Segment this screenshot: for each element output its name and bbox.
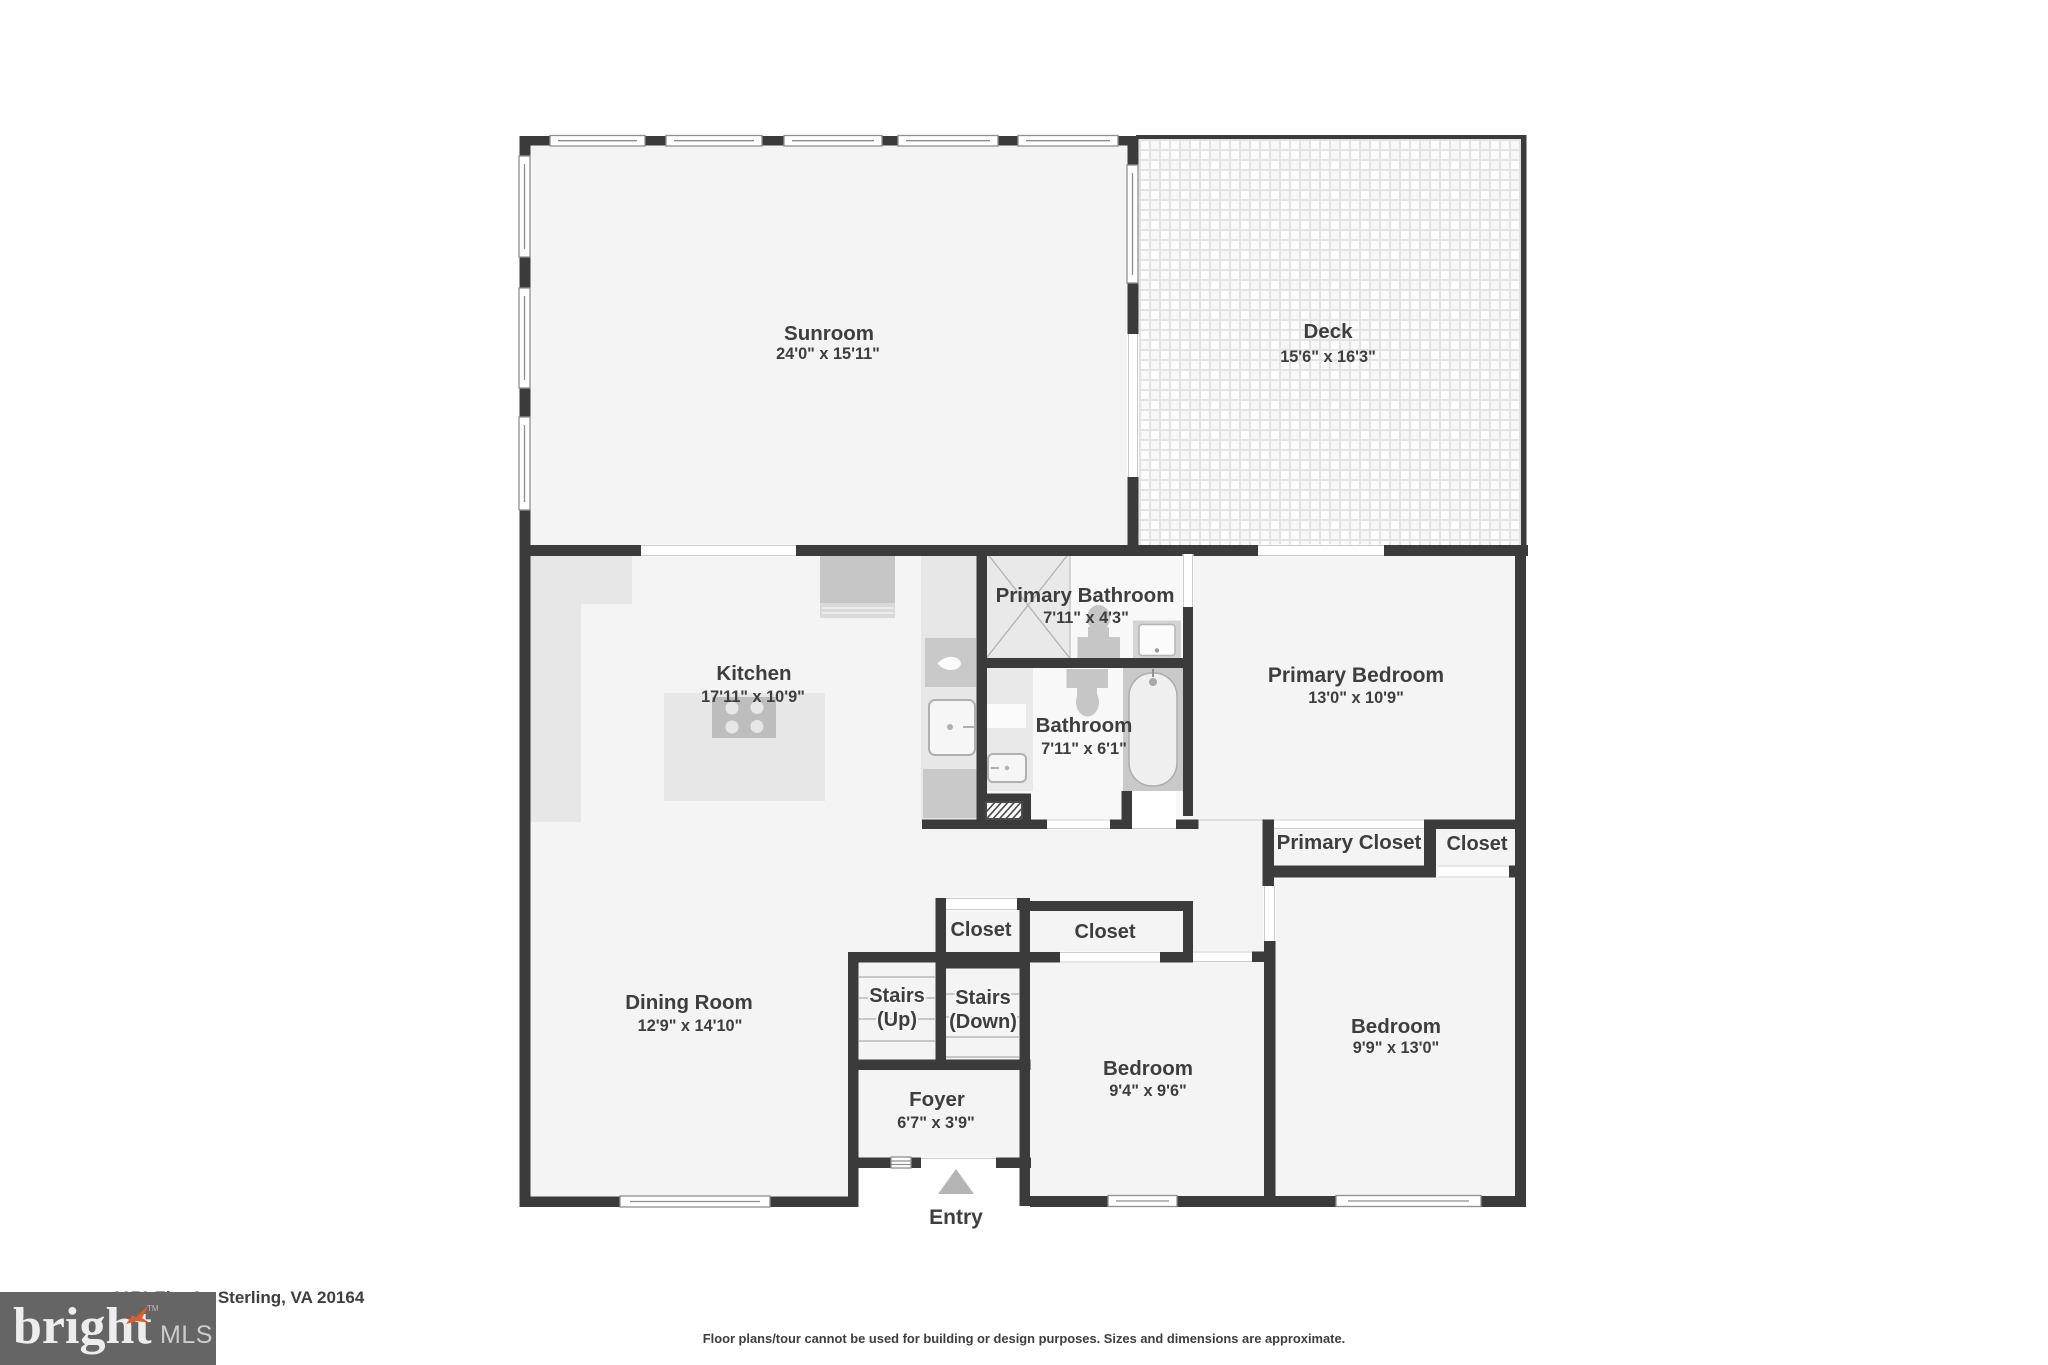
svg-text:(Down): (Down)	[949, 1011, 1017, 1033]
svg-text:Primary Bathroom: Primary Bathroom	[996, 584, 1175, 607]
svg-text:12'9" x 14'10": 12'9" x 14'10"	[638, 1017, 743, 1035]
svg-text:6'7" x 3'9": 6'7" x 3'9"	[897, 1114, 975, 1132]
svg-text:Closet: Closet	[950, 919, 1011, 941]
svg-text:7'11" x 6'1": 7'11" x 6'1"	[1041, 740, 1127, 758]
svg-text:24'0" x 15'11": 24'0" x 15'11"	[776, 345, 880, 363]
svg-text:7'11" x 4'3": 7'11" x 4'3"	[1043, 609, 1129, 627]
svg-text:9'9" x 13'0": 9'9" x 13'0"	[1353, 1039, 1440, 1057]
svg-text:Deck: Deck	[1303, 320, 1353, 343]
svg-text:17'11" x 10'9": 17'11" x 10'9"	[701, 688, 805, 706]
svg-text:Stairs: Stairs	[955, 987, 1011, 1009]
svg-text:TM: TM	[147, 1304, 159, 1313]
svg-text:MLS: MLS	[160, 1321, 213, 1349]
svg-text:15'6" x 16'3": 15'6" x 16'3"	[1280, 348, 1376, 366]
svg-text:(Up): (Up)	[877, 1009, 917, 1031]
svg-text:Floor plans/tour cannot be use: Floor plans/tour cannot be used for buil…	[703, 1331, 1345, 1346]
svg-text:Stairs: Stairs	[869, 985, 925, 1007]
svg-text:Dining Room: Dining Room	[625, 991, 753, 1014]
svg-text:Sunroom: Sunroom	[784, 322, 874, 345]
svg-text:Foyer: Foyer	[909, 1088, 965, 1111]
svg-text:13'0" x 10'9": 13'0" x 10'9"	[1308, 689, 1404, 707]
svg-text:Bedroom: Bedroom	[1103, 1057, 1193, 1080]
svg-text:Primary Bedroom: Primary Bedroom	[1268, 664, 1444, 687]
svg-text:Closet: Closet	[1074, 921, 1135, 943]
svg-text:bright: bright	[13, 1298, 152, 1355]
svg-text:Bedroom: Bedroom	[1351, 1015, 1441, 1038]
svg-text:Closet: Closet	[1446, 833, 1507, 855]
svg-text:Bathroom: Bathroom	[1036, 714, 1133, 737]
svg-text:Kitchen: Kitchen	[716, 662, 791, 685]
svg-text:Entry: Entry	[929, 1206, 983, 1229]
svg-text:Primary Closet: Primary Closet	[1277, 831, 1422, 854]
svg-text:9'4" x 9'6": 9'4" x 9'6"	[1109, 1082, 1187, 1100]
